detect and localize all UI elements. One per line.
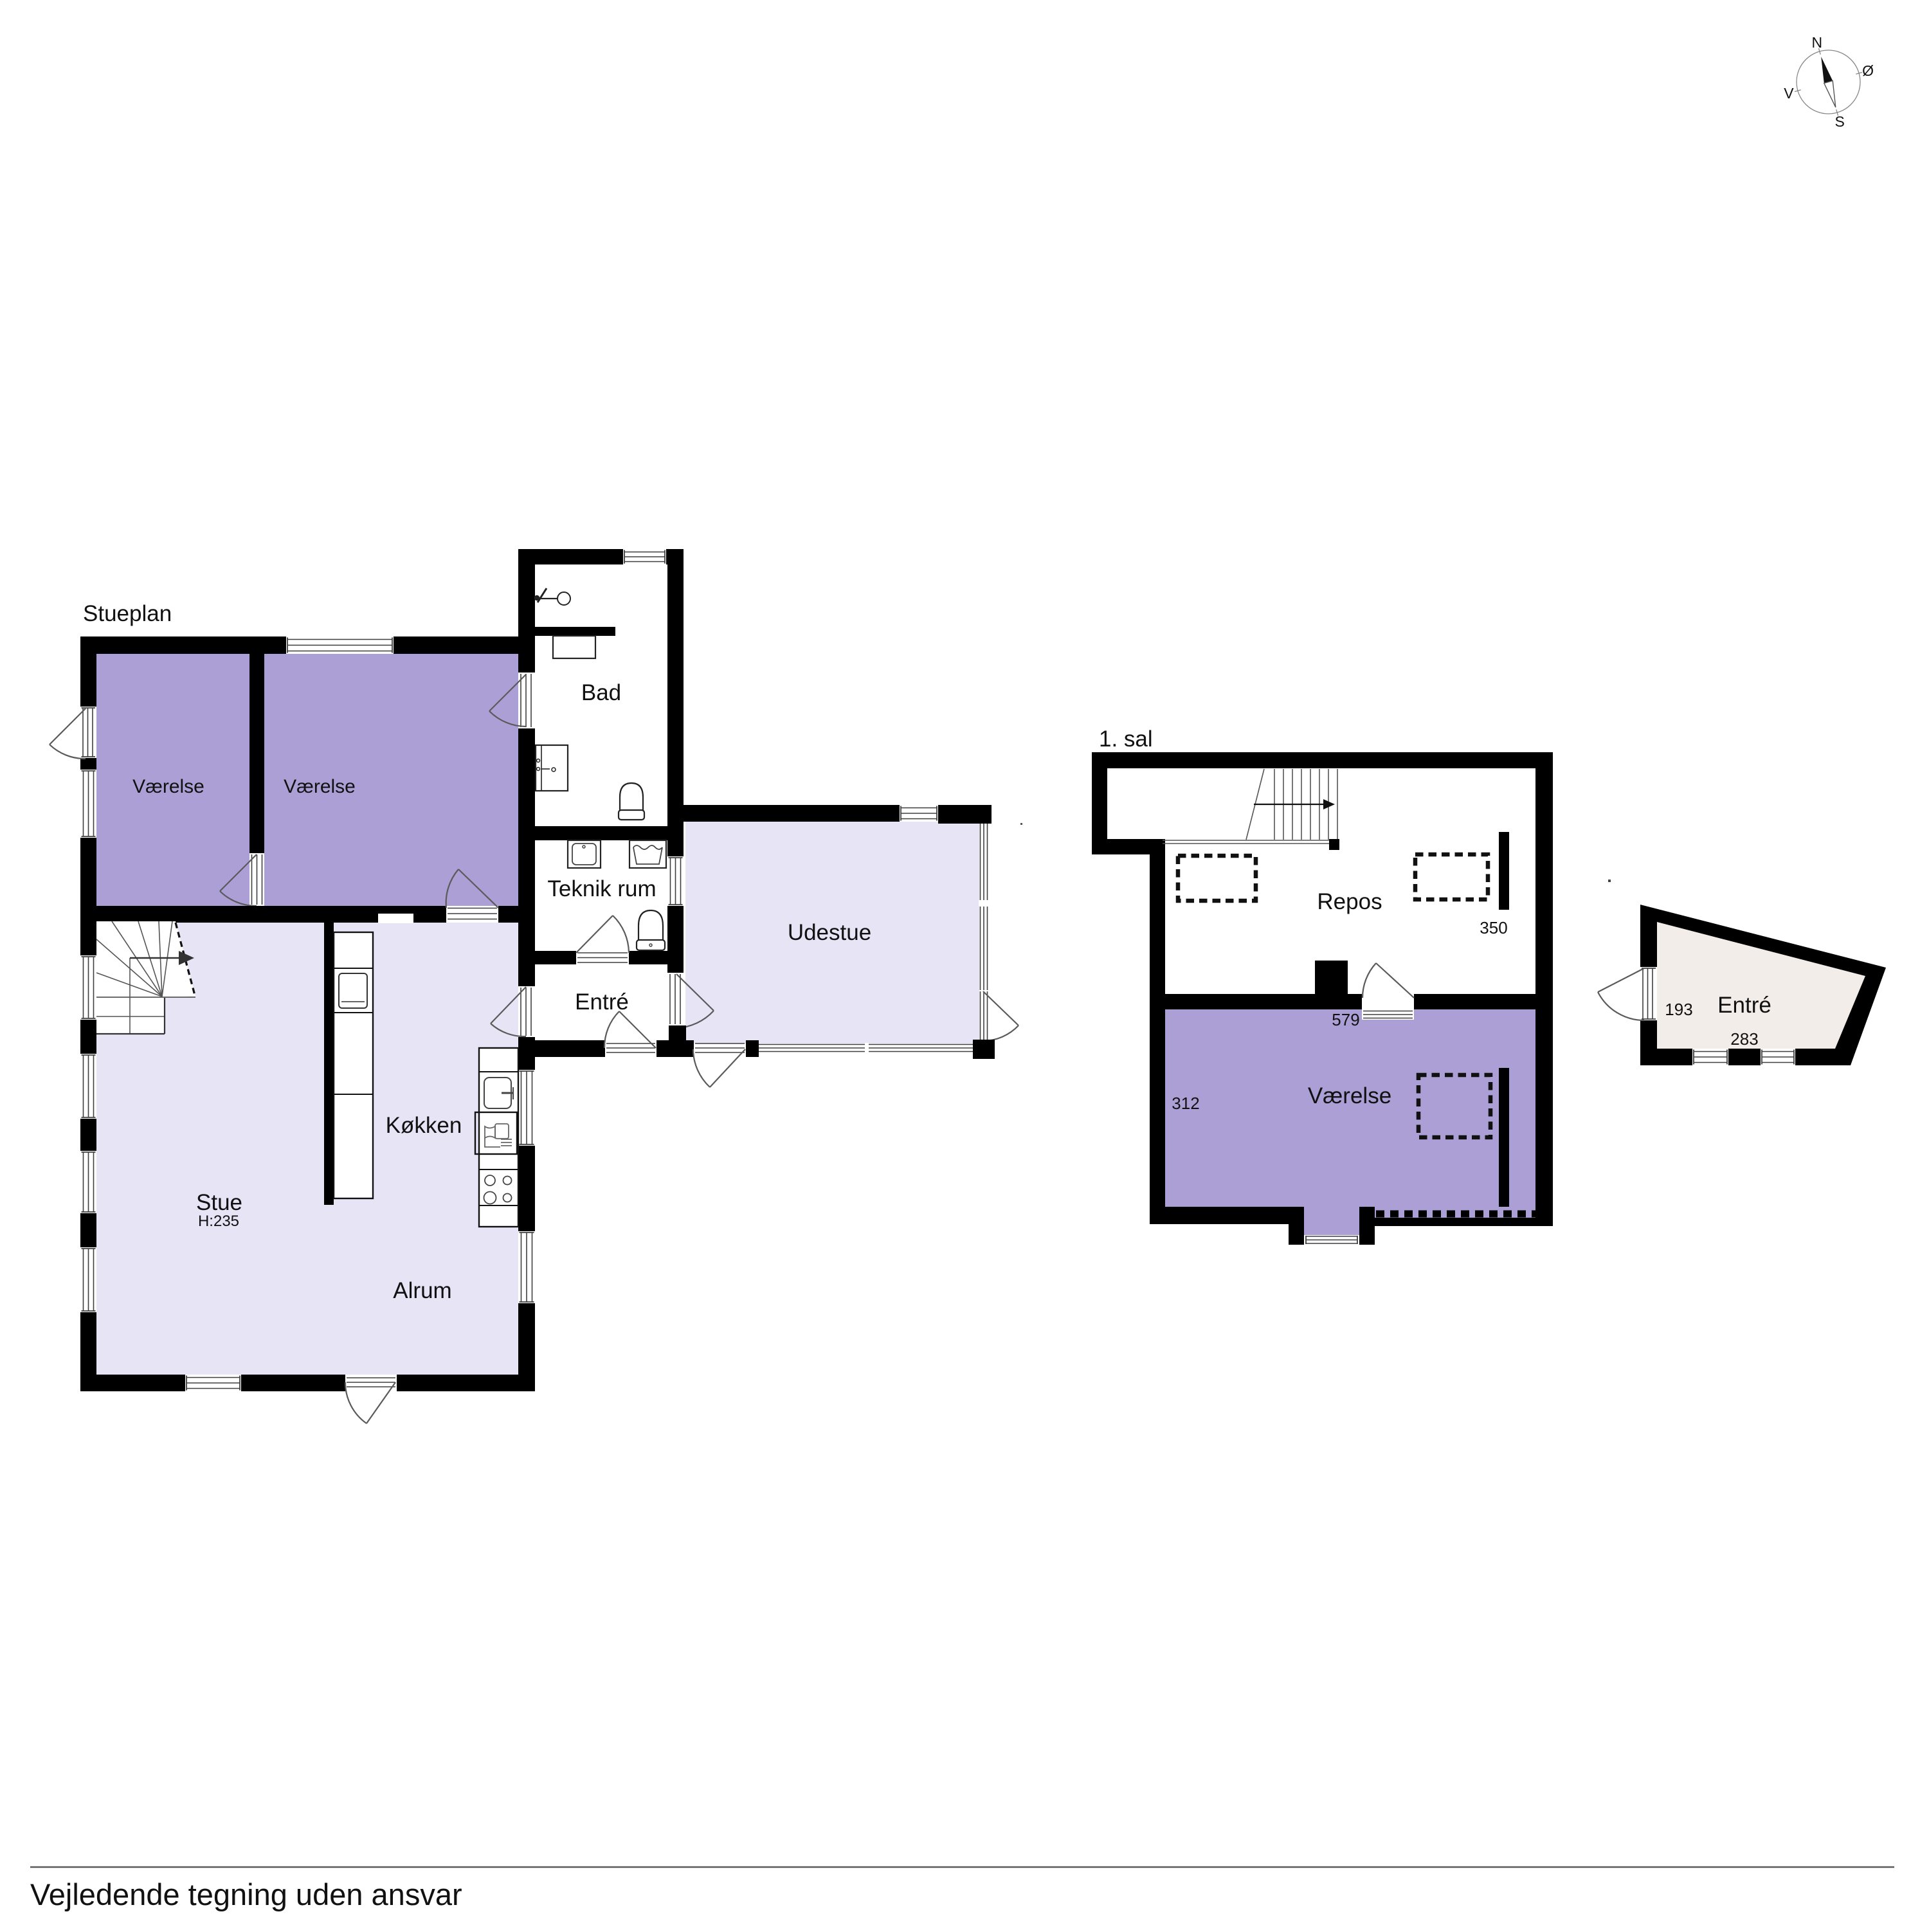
svg-text:Vejledende tegning uden ansvar: Vejledende tegning uden ansvar — [30, 1877, 462, 1911]
svg-text:Køkken: Køkken — [386, 1113, 462, 1138]
svg-text:Værelse: Værelse — [284, 776, 356, 797]
svg-text:Repos: Repos — [1317, 889, 1382, 914]
svg-text:N: N — [1812, 34, 1823, 51]
svg-text:H:235: H:235 — [198, 1213, 239, 1230]
svg-text:Teknik rum: Teknik rum — [547, 876, 656, 901]
svg-text:283: 283 — [1730, 1029, 1758, 1049]
svg-text:1. sal: 1. sal — [1099, 727, 1153, 752]
svg-text:579: 579 — [1332, 1010, 1359, 1029]
svg-text:Entré: Entré — [575, 989, 629, 1015]
svg-text:312: 312 — [1172, 1094, 1199, 1113]
svg-text:350: 350 — [1480, 918, 1507, 937]
svg-text:S: S — [1834, 113, 1844, 130]
svg-text:193: 193 — [1665, 1000, 1692, 1019]
svg-text:Udestue: Udestue — [788, 920, 871, 945]
svg-text:Stueplan: Stueplan — [83, 601, 172, 626]
svg-text:Alrum: Alrum — [393, 1278, 451, 1303]
svg-text:V: V — [1784, 85, 1794, 102]
svg-text:Værelse: Værelse — [1308, 1083, 1391, 1108]
svg-text:Værelse: Værelse — [132, 776, 204, 797]
svg-text:Entré: Entré — [1717, 993, 1771, 1018]
svg-text:Bad: Bad — [581, 680, 621, 705]
svg-text:Ø: Ø — [1862, 62, 1874, 79]
svg-text:Stue: Stue — [196, 1190, 242, 1215]
